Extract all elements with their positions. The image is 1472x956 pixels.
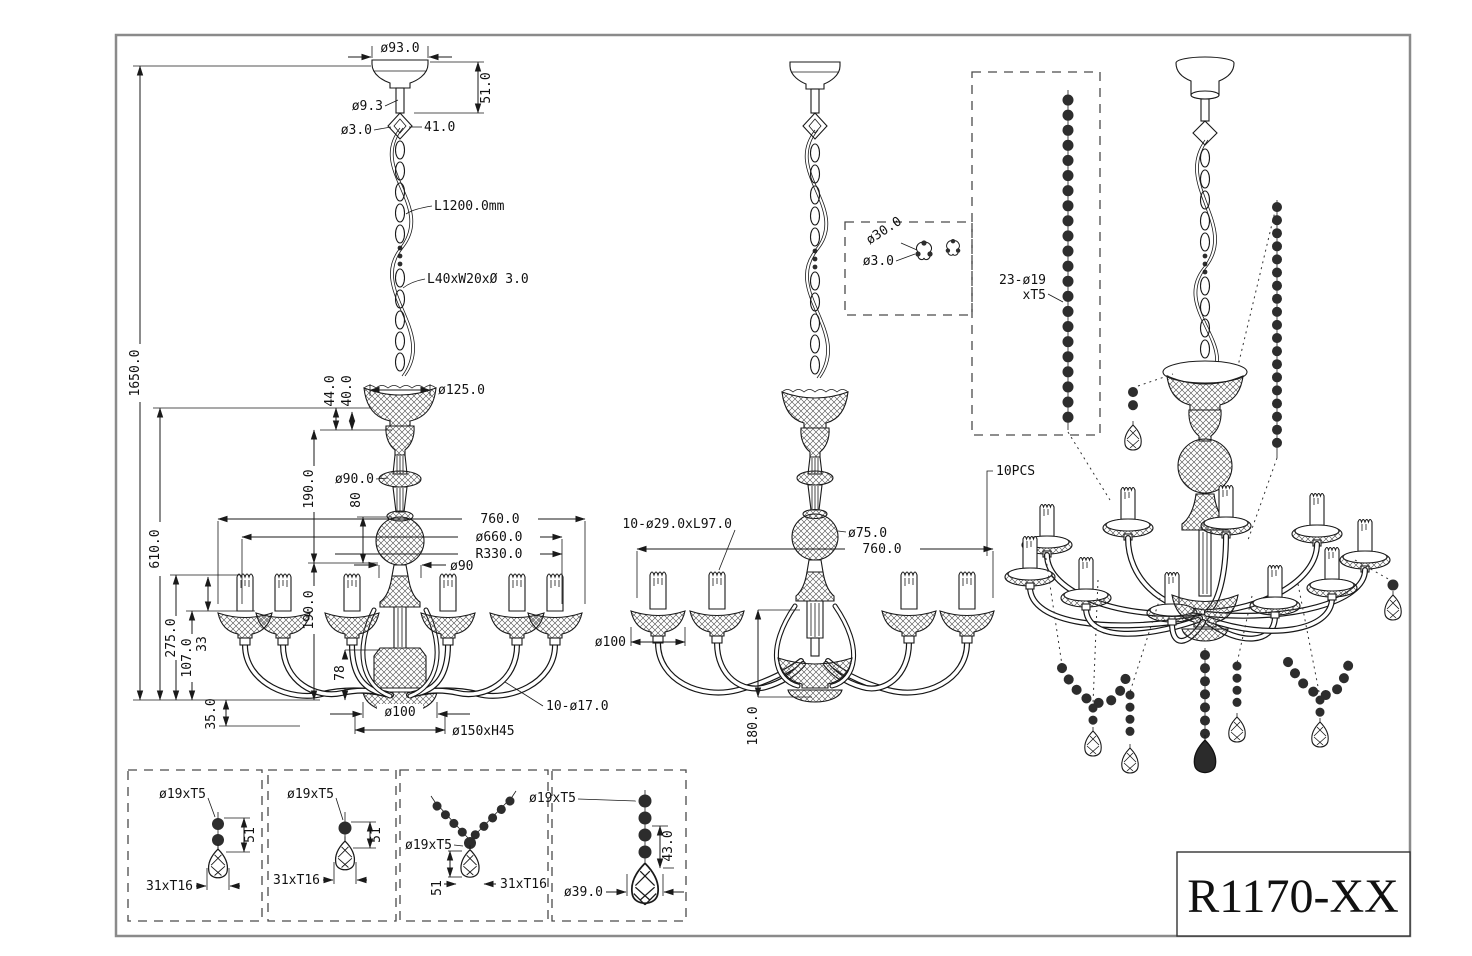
dim-cord-dia: ø3.0 [341,123,372,138]
dim-body-h: 610.0 [148,529,163,568]
detail2-h: 51 [369,827,384,843]
detail1-h: 51 [243,827,258,843]
detail4-w: ø39.0 [564,885,603,900]
center-column [792,428,838,656]
technical-drawing: ø93.0 51.0 ø9.3 ø3.0 41.0 L1200.0mm L40x… [0,0,1472,956]
detail2-bead: ø19xT5 [287,787,334,802]
detail2-w: 31xT16 [273,873,320,888]
dim-107: 107.0 [180,638,195,677]
faceted-drop [632,863,658,905]
canopy [372,60,428,88]
dim-link-outer: ø30.0 [864,214,905,248]
dim-44: 44.0 [323,375,338,406]
detail-box-1: ø19xT5 51 31xT16 [128,770,262,921]
dim-strand-2: xT5 [1023,288,1046,303]
dim-col-h: 190.0 [302,469,317,508]
detail4-bead: ø19xT5 [529,791,576,806]
chain [396,141,405,371]
dim-bottom-h: 180.0 [746,706,761,745]
dim-candles: 10-ø17.0 [546,699,609,714]
dim-arm-r: R330.0 [476,547,523,562]
dim-strand-1: 23-ø19 [999,273,1046,288]
bottom-dome [788,690,842,702]
drawing-sheet: ø93.0 51.0 ø9.3 ø3.0 41.0 L1200.0mm L40x… [0,0,1472,956]
detail-box-2: ø19xT5 51 31xT16 [268,770,396,921]
title-block: R1170-XX [1177,852,1410,936]
dim-ball-h: 80 [349,492,364,508]
detail3-h: 51 [430,880,445,896]
detail1-w: 31xT16 [146,879,193,894]
label-pcs: 10PCS [996,464,1035,479]
front-view: ø93.0 51.0 ø9.3 ø3.0 41.0 L1200.0mm L40x… [128,41,609,739]
dim-canopy-h: 51.0 [479,72,494,103]
top-bowl [364,388,436,426]
dim-link-wire: ø3.0 [863,254,894,269]
detail3-bead: ø19xT5 [405,838,452,853]
dim-78: 78 [333,665,348,681]
model-number: R1170-XX [1187,870,1399,923]
dim-finial: ø150xH45 [452,724,515,739]
dim-side-width: 760.0 [862,542,901,557]
dim-width: 760.0 [480,512,519,527]
detail1-bead: ø19xT5 [159,787,206,802]
dim-arm-dia: ø660.0 [476,530,523,545]
dim-hub-dia: ø90 [450,559,473,574]
dim-chain-link: L40xW20xØ 3.0 [427,272,529,287]
chain [1201,149,1210,379]
dim-bobeche-dia: ø100 [595,635,626,650]
dim-lower-h: 190.0 [302,590,317,629]
dim-loop-w: 41.0 [424,120,455,135]
detail-box-3: ø19xT5 51 31xT16 [400,770,548,921]
dim-33: 33 [195,636,210,652]
canopy [790,62,840,89]
dim-bottom-dia: ø100 [384,705,415,720]
detail-box-4: ø19xT5 43.0 ø39.0 [529,770,686,921]
dim-arm-spec: 10-ø29.0xL97.0 [622,517,732,532]
detail4-h: 43.0 [661,830,676,861]
dim-ball-dia: ø75.0 [848,526,887,541]
dim-35: 35.0 [204,698,219,729]
strand-detail-box: 23-ø19 xT5 [972,72,1100,435]
dim-chain-len: L1200.0mm [434,199,505,214]
hanging-loop [388,113,412,139]
center-column [363,426,437,713]
dim-col-dia: ø90.0 [335,472,374,487]
side-view: 10-ø29.0xL97.0 ø75.0 760.0 ø100 180.0 10… [595,62,1100,746]
dim-total-h: 1650.0 [128,350,143,397]
dim-bowl-dia: ø125.0 [438,383,485,398]
dim-40: 40.0 [340,375,355,406]
link-detail-box: ø30.0 ø3.0 [845,214,972,315]
dim-canopy-dia: ø93.0 [380,41,419,56]
detail3-w: 31xT16 [500,877,547,892]
dim-275: 275.0 [164,618,179,657]
dim-stem-dia: ø9.3 [352,99,383,114]
